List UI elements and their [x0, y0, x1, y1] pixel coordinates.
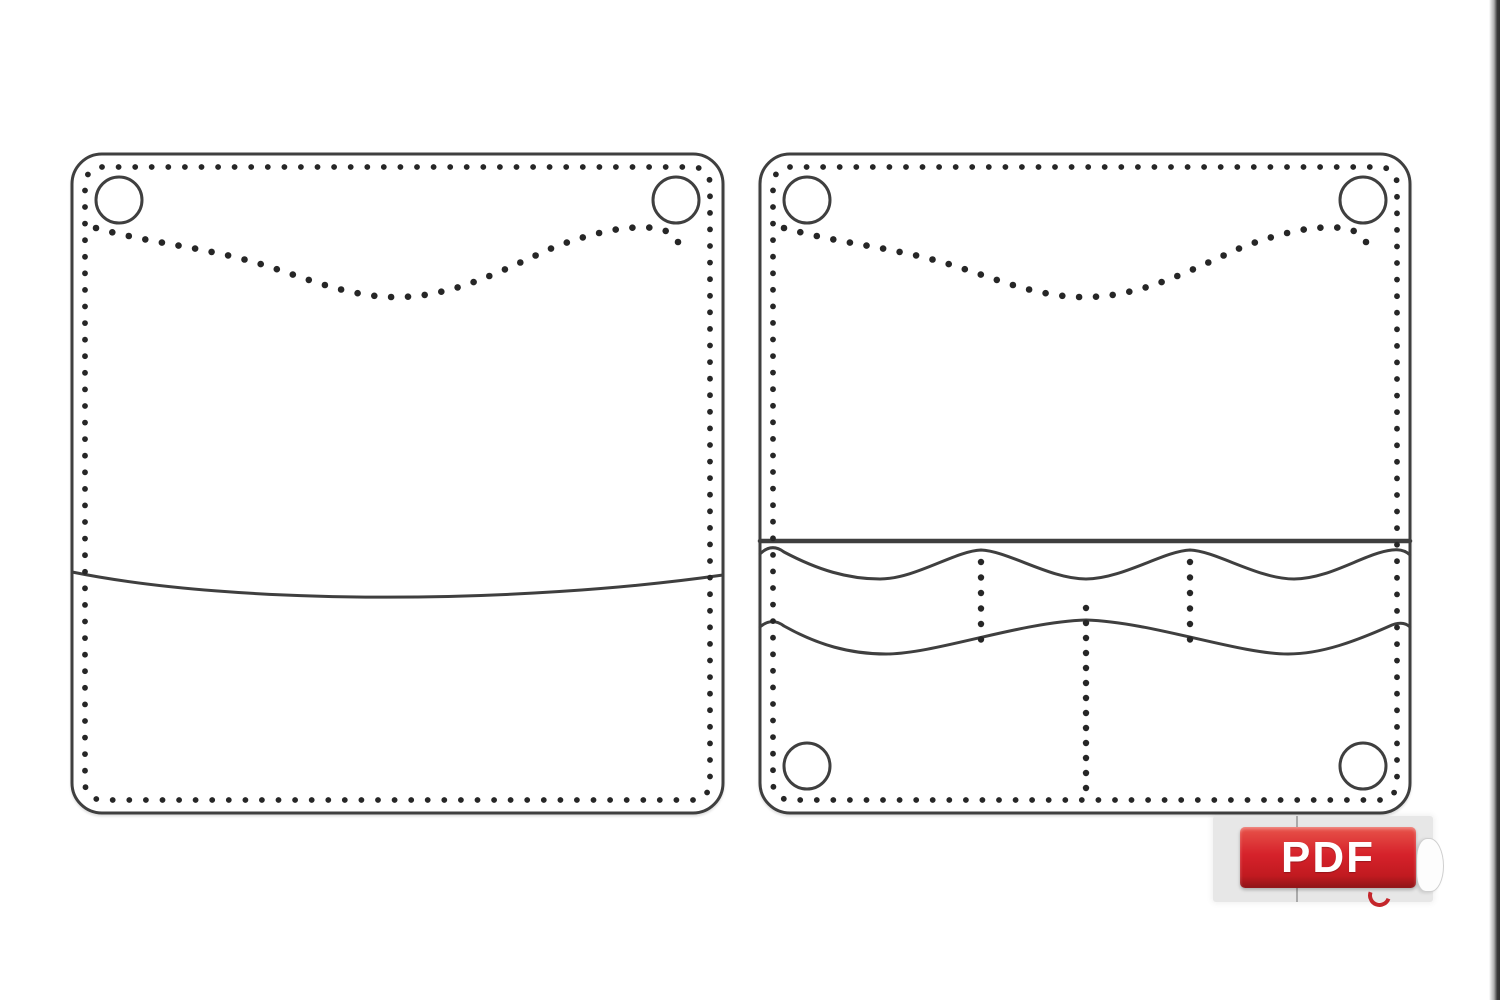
wallet-exterior-panel — [72, 154, 723, 813]
wallet-interior-pocket-panel — [760, 154, 1410, 813]
right-edge-shadow-bar — [1489, 0, 1500, 1000]
pattern-image: PDF — [0, 0, 1500, 1000]
wallet-pattern-drawing — [0, 0, 1500, 1000]
